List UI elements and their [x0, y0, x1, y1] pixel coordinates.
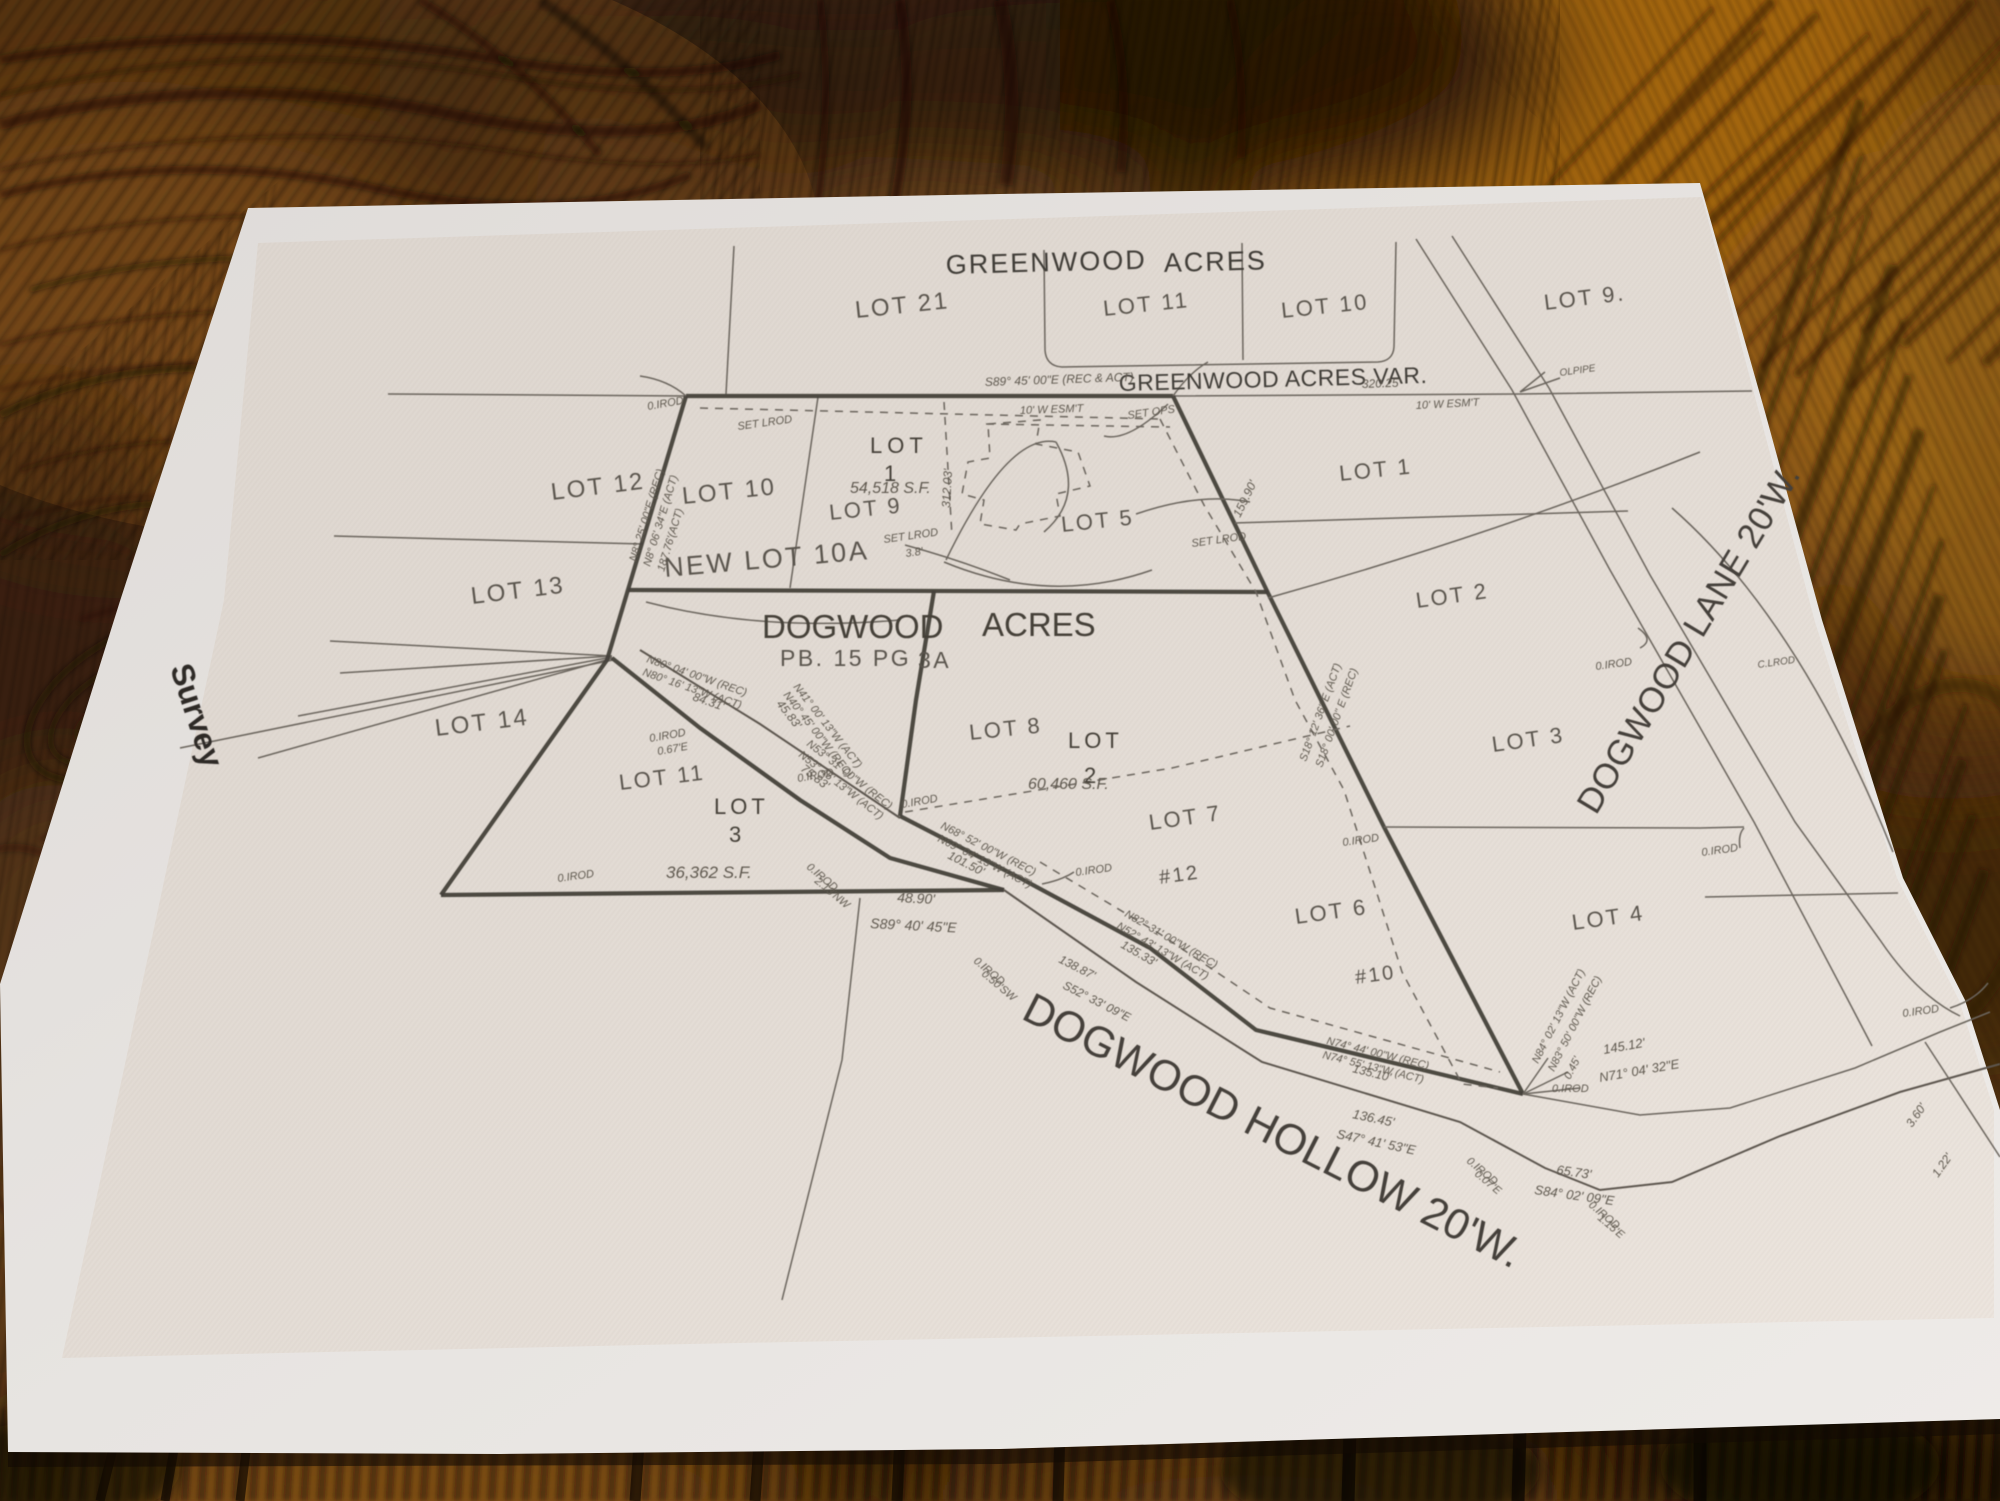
svg-text:54,518 S.F.: 54,518 S.F.: [850, 480, 931, 497]
svg-text:48.90': 48.90': [897, 889, 937, 907]
svg-text:0.IROD: 0.IROD: [1552, 1083, 1589, 1095]
svg-text:320.25': 320.25': [1362, 376, 1402, 391]
svg-text:312.03': 312.03': [939, 468, 955, 508]
svg-text:36,362 S.F.: 36,362 S.F.: [666, 863, 752, 882]
svg-text:ACRES: ACRES: [982, 606, 1096, 643]
svg-text:DOGWOOD: DOGWOOD: [762, 608, 943, 645]
svg-text:60,460 S.F.: 60,460 S.F.: [1028, 776, 1109, 793]
svg-text:GREENWOOD: GREENWOOD: [945, 245, 1147, 280]
svg-text:LOT: LOT: [1068, 728, 1123, 753]
svg-text:LOT: LOT: [714, 794, 769, 819]
svg-text:10' W ESM'T: 10' W ESM'T: [1020, 403, 1085, 417]
svg-text:LOT: LOT: [870, 433, 928, 458]
svg-text:3.8': 3.8': [905, 546, 925, 560]
svg-text:3: 3: [729, 822, 741, 847]
svg-text:PB. 15 PG: PB. 15 PG: [780, 645, 911, 671]
svg-text:ACRES: ACRES: [1163, 245, 1267, 278]
svg-text:3A: 3A: [918, 647, 951, 673]
